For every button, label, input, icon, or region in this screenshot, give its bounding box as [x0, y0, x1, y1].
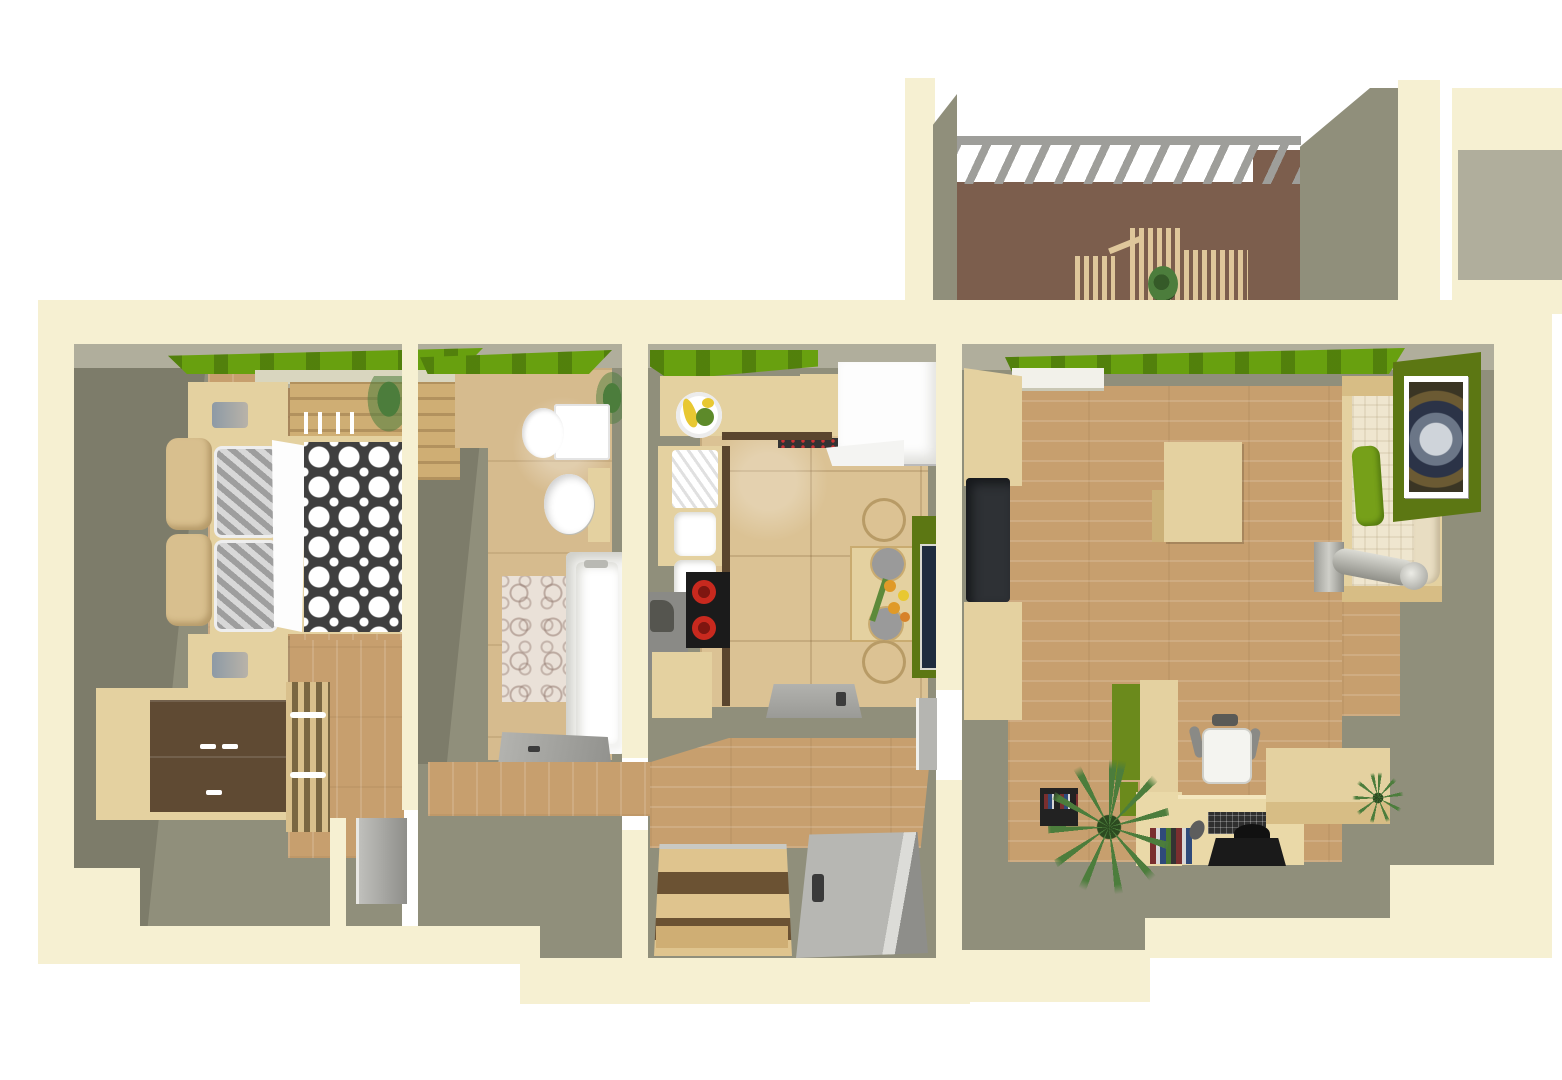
- right-wall: [1494, 300, 1552, 958]
- office-chair-headrest: [1212, 714, 1238, 726]
- bathtub-inner: [576, 562, 618, 744]
- palm-plant: [1048, 752, 1170, 902]
- burner-2: [692, 616, 716, 640]
- divider-bedroom-bathroom: [402, 300, 418, 810]
- pillow-1: [214, 446, 278, 538]
- monitor: [1208, 838, 1286, 866]
- bedroom-se-wall: [330, 818, 346, 928]
- daybed-footboard: [1342, 586, 1442, 602]
- toilet-bowl: [522, 408, 564, 458]
- dresser-handle-1: [200, 744, 216, 749]
- bottom-left-notch: [38, 868, 140, 930]
- balcony-right-wall: [1398, 80, 1440, 314]
- bottom-wall-mid: [520, 958, 970, 1004]
- open-living-door: [916, 698, 937, 770]
- wall-tv: [966, 478, 1010, 602]
- wardrobe-handle-4: [350, 412, 354, 434]
- stool-top: [862, 498, 906, 542]
- burner-1: [692, 580, 716, 604]
- dresser-front: [150, 700, 286, 812]
- divider-kitchen-living-upper: [936, 300, 962, 690]
- bottom-wall-right-a: [960, 950, 1150, 1002]
- doormat-handle: [836, 692, 846, 706]
- divider-bath-kitchen-lower: [622, 830, 648, 960]
- flower-1: [884, 580, 896, 592]
- slatted-cabinet: [286, 682, 330, 832]
- flower-4: [900, 612, 910, 622]
- office-chair-seat: [1202, 728, 1252, 784]
- wardrobe-handle-2: [318, 412, 322, 434]
- coffee-table: [1164, 442, 1242, 542]
- media-cabinet-bottom: [964, 602, 1022, 720]
- divider-kitchen-living-lower: [936, 780, 962, 960]
- top-wall: [38, 300, 1540, 344]
- open-bedroom-door: [356, 818, 407, 904]
- wardrobe-handle-1: [304, 412, 308, 434]
- pergola-slats: [953, 144, 1353, 184]
- balcony-plant: [1148, 266, 1178, 302]
- bed-sheet-fold: [272, 440, 306, 632]
- slatted-cabinet-handles-2: [290, 772, 326, 778]
- left-wall: [38, 300, 74, 930]
- round-washbasin: [544, 474, 594, 534]
- balcony-chairs: [1184, 250, 1248, 306]
- counter-dark-edge-h: [722, 432, 832, 440]
- chair-seat-1: [870, 546, 906, 582]
- neighbor-wall-inner: [1458, 150, 1562, 280]
- bedroom-corner-plant: [366, 376, 404, 434]
- sink-basin-1: [674, 512, 716, 556]
- bottom-wall-right-b: [1145, 918, 1400, 958]
- entry-threshold-top: [658, 928, 788, 946]
- balcony-left-wall-inner: [933, 94, 957, 314]
- dresser-handle-2: [222, 744, 238, 749]
- divider-bath-kitchen-upper: [622, 300, 648, 758]
- kitchen-doormat: [766, 684, 862, 718]
- wardrobe-handle-3: [336, 412, 340, 434]
- kitchen-lower-cabinet: [652, 652, 712, 718]
- fruit-lemon: [702, 398, 714, 408]
- slatted-cabinet-handles-1: [290, 712, 326, 718]
- circle-pattern-duvet: [304, 442, 406, 632]
- bottom-right-corner-block: [1390, 865, 1522, 958]
- entry-floor: [650, 738, 932, 848]
- table-lamp-top: [212, 402, 248, 428]
- gray-appliance-handle: [650, 600, 674, 632]
- sink-drainer: [672, 450, 718, 508]
- floor-plan: [0, 0, 1562, 1080]
- balcony-left-wall: [905, 78, 935, 314]
- circle-bath-mat: [502, 576, 570, 702]
- media-cabinet-top: [964, 368, 1022, 486]
- balcony-right-wall-inner: [1300, 88, 1400, 314]
- dresser-handle-3: [206, 790, 222, 795]
- daybed-green-cushion: [1351, 445, 1385, 527]
- living-radiator-sill: [1012, 368, 1104, 388]
- floor-lamp-cap: [1400, 562, 1428, 590]
- headboard-cushion-2: [166, 534, 212, 626]
- flower-2: [898, 590, 909, 601]
- wall-art-abstract: [1409, 382, 1463, 492]
- pillow-2: [214, 540, 278, 632]
- bathroom-door-handle: [528, 746, 540, 752]
- front-door-handle: [812, 874, 824, 902]
- flower-3: [888, 602, 900, 614]
- fruit-apple: [696, 408, 714, 426]
- bathtub-faucet: [584, 560, 608, 568]
- sideboard-plant: [1352, 772, 1404, 824]
- bottom-wall-left: [38, 926, 540, 964]
- table-lamp-bottom: [212, 652, 248, 678]
- corridor-floor: [428, 762, 654, 816]
- stool-bottom: [862, 640, 906, 684]
- headboard-cushion-1: [166, 438, 212, 530]
